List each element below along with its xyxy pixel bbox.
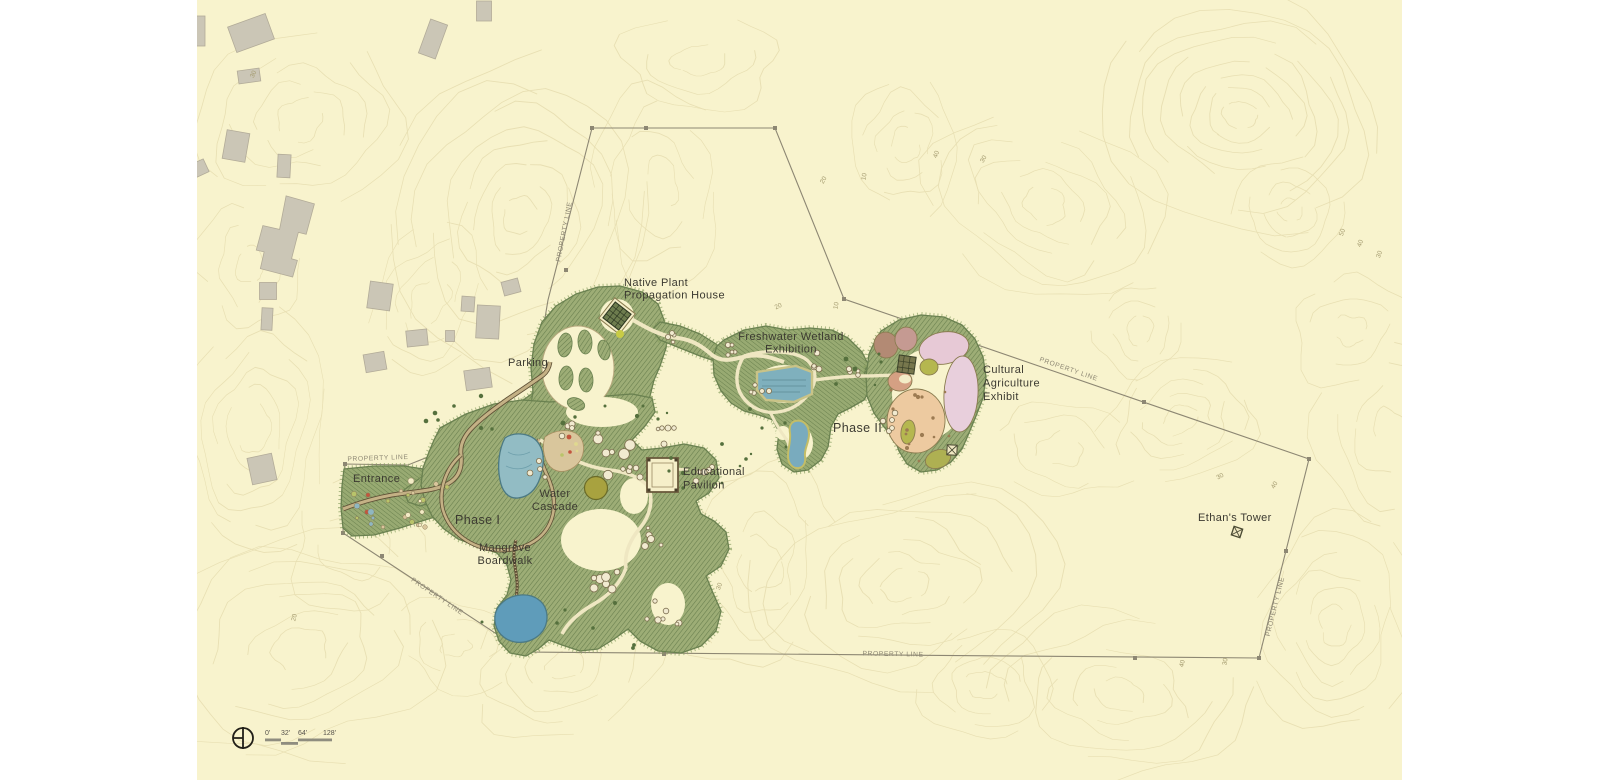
svg-text:PROPERTY LINE: PROPERTY LINE [862, 650, 923, 658]
svg-text:32': 32' [281, 730, 290, 737]
svg-text:MangroveBoardwalk: MangroveBoardwalk [478, 542, 533, 567]
svg-text:64': 64' [298, 730, 307, 737]
svg-text:Ethan's Tower: Ethan's Tower [1198, 512, 1272, 524]
svg-text:Parking: Parking [508, 357, 548, 369]
svg-text:Entrance: Entrance [353, 473, 400, 485]
svg-text:128': 128' [323, 730, 336, 737]
svg-text:Phase II: Phase II [833, 421, 882, 435]
svg-text:Phase I: Phase I [455, 513, 500, 527]
svg-text:0': 0' [265, 730, 270, 737]
